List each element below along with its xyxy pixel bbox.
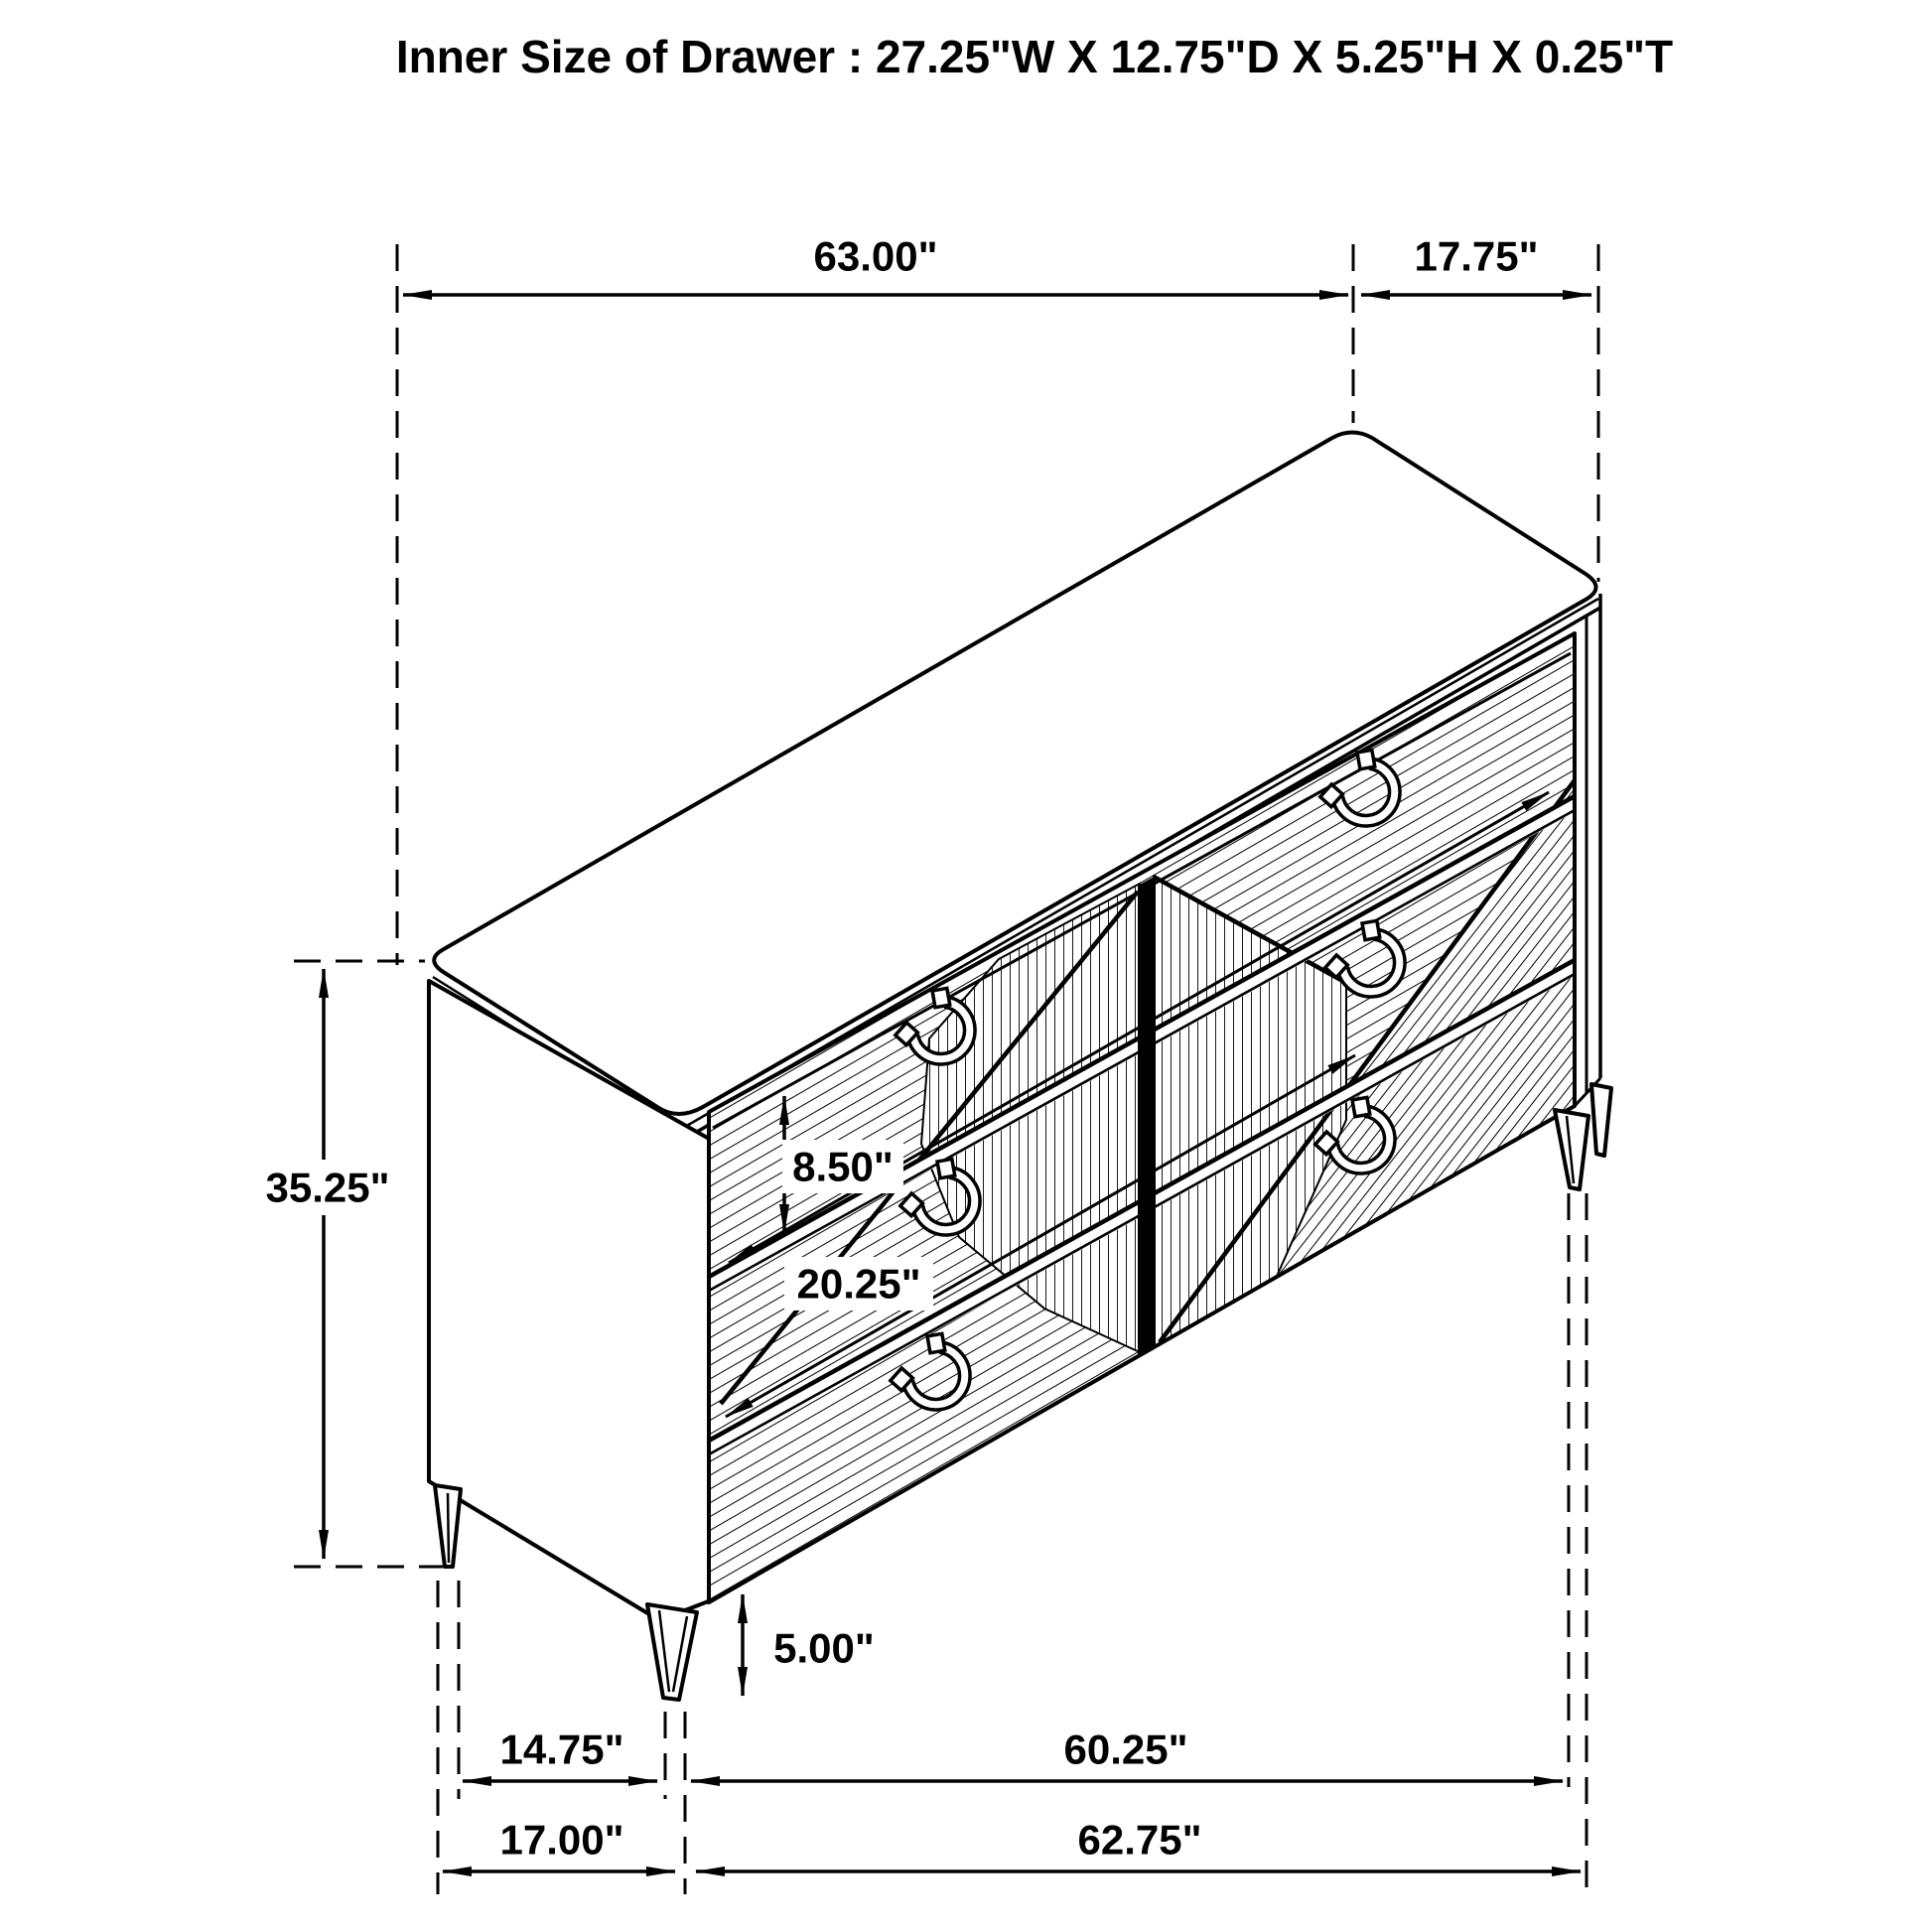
- center-divider: [1138, 876, 1156, 1356]
- dim-label-top-width: 63.00": [813, 233, 937, 280]
- dim-label-base-width: 62.75": [1077, 1817, 1201, 1863]
- dim-label-overall-height: 35.25": [265, 1165, 389, 1211]
- dimension-diagram-page: Inner Size of Drawer : 27.25"W X 12.75"D…: [0, 0, 1932, 1932]
- dim-label-drawer-front-height: 8.50": [792, 1144, 894, 1190]
- dim-label-leg-span-width: 60.25": [1063, 1726, 1187, 1773]
- dim-label-top-depth: 17.75": [1414, 233, 1538, 280]
- canvas-background: [0, 0, 1932, 1932]
- dim-label-drawer-inner-depth: 20.25": [796, 1261, 920, 1308]
- dim-label-base-depth: 17.00": [499, 1817, 623, 1863]
- dresser-dimension-diagram: Inner Size of Drawer : 27.25"W X 12.75"D…: [0, 0, 1932, 1932]
- diagram-title: Inner Size of Drawer : 27.25"W X 12.75"D…: [396, 31, 1673, 82]
- dim-label-leg-height: 5.00": [773, 1625, 875, 1672]
- dim-label-front-leg-inset: 14.75": [499, 1726, 623, 1773]
